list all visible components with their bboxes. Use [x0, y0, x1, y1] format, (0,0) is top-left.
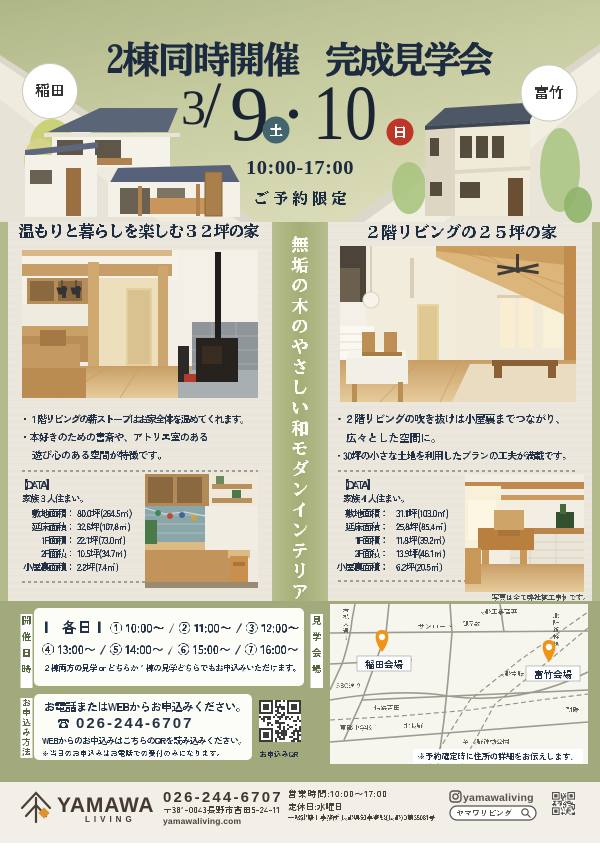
svg-text:LIVING: LIVING — [85, 815, 136, 824]
svg-text:026-244-6707: 026-244-6707 — [163, 789, 283, 806]
svg-text:026-244-6707: 026-244-6707 — [76, 715, 193, 732]
svg-text:10: 10 — [313, 69, 377, 156]
svg-text:YAMAWA: YAMAWA — [57, 794, 154, 817]
svg-text:yamawaliving: yamawaliving — [463, 792, 534, 804]
svg-text:/: / — [203, 69, 222, 142]
svg-text:9: 9 — [230, 70, 269, 157]
svg-text:10:00-17:00: 10:00-17:00 — [246, 157, 354, 179]
svg-text:yamawaliving.com: yamawaliving.com — [163, 816, 242, 826]
